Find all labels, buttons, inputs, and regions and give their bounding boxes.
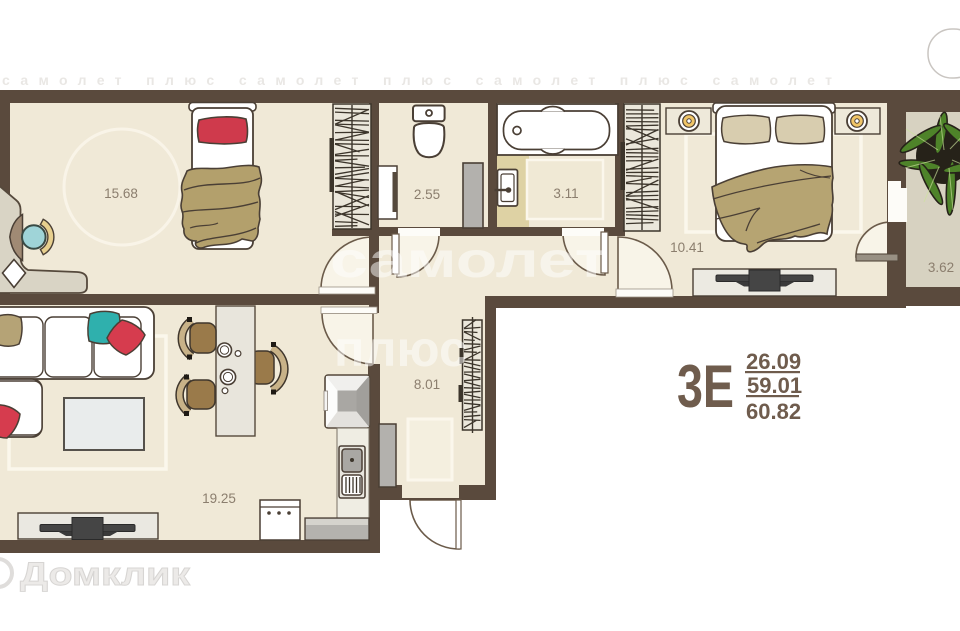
svg-text:10.41: 10.41 xyxy=(670,240,704,255)
svg-text:плюс: плюс xyxy=(334,321,467,377)
svg-text:15.68: 15.68 xyxy=(104,186,138,201)
svg-text:8.01: 8.01 xyxy=(414,377,440,392)
svg-text:26.09: 26.09 xyxy=(746,349,801,374)
svg-text:59.01: 59.01 xyxy=(747,373,802,398)
svg-text:19.25: 19.25 xyxy=(202,491,236,506)
svg-text:3.11: 3.11 xyxy=(553,186,578,201)
svg-text:Домклик: Домклик xyxy=(20,556,191,592)
svg-text:3Е: 3Е xyxy=(677,353,734,420)
svg-text:60.82: 60.82 xyxy=(746,399,801,424)
svg-text:3.62: 3.62 xyxy=(928,260,954,275)
svg-text:самолет: самолет xyxy=(330,232,608,288)
svg-text:2.55: 2.55 xyxy=(414,187,440,202)
